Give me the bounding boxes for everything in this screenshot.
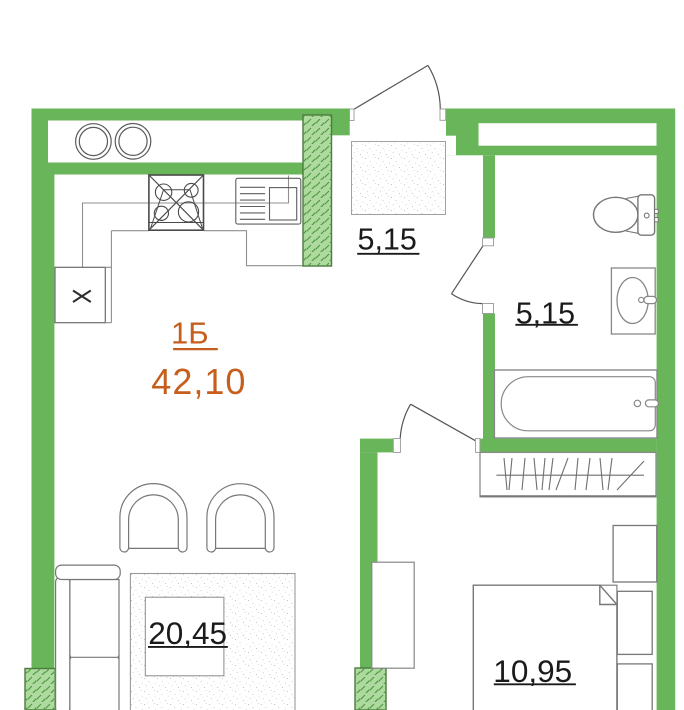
svg-text:1Б: 1Б <box>171 316 209 351</box>
svg-text:20,45: 20,45 <box>148 615 227 651</box>
svg-text:42,10: 42,10 <box>151 361 246 402</box>
svg-text:5,15: 5,15 <box>358 223 417 257</box>
